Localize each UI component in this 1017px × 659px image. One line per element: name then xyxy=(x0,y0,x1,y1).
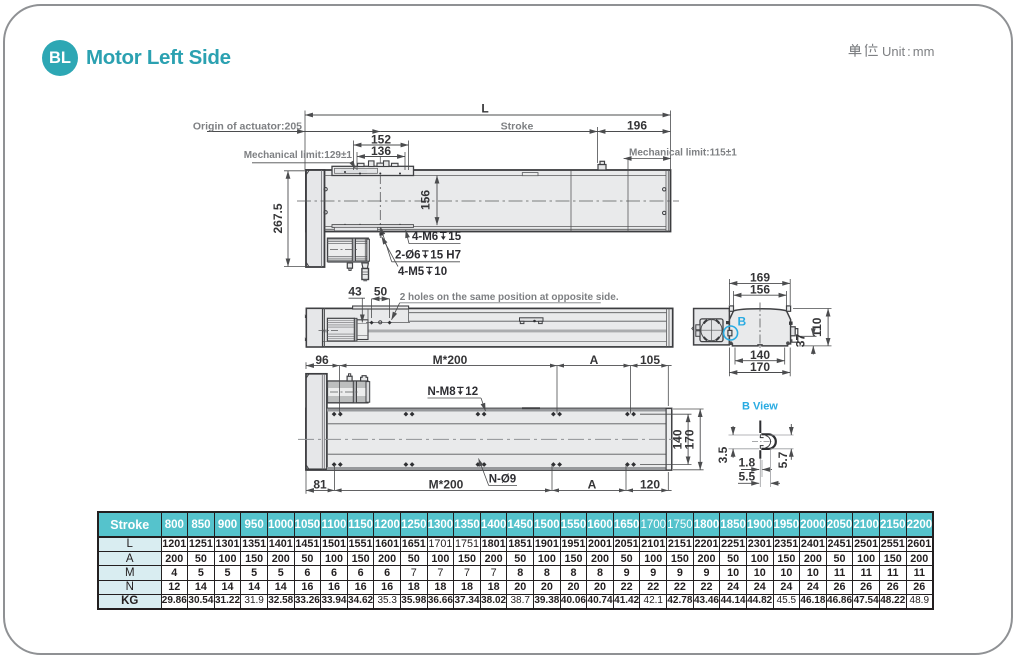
svg-text:1.8: 1.8 xyxy=(739,456,756,470)
svg-text:43: 43 xyxy=(348,285,362,299)
svg-text:37: 37 xyxy=(794,334,808,348)
svg-text:156: 156 xyxy=(750,283,770,297)
svg-text:Mechanical limit:115±1: Mechanical limit:115±1 xyxy=(629,148,737,159)
svg-text:105: 105 xyxy=(640,353,660,367)
svg-text:81: 81 xyxy=(313,478,327,492)
svg-text:96: 96 xyxy=(315,353,329,367)
svg-text:170: 170 xyxy=(750,360,770,374)
svg-text:B: B xyxy=(738,315,747,329)
svg-text:Mechanical limit:129±1: Mechanical limit:129±1 xyxy=(244,150,353,161)
svg-text:N-M8: N-M8 xyxy=(428,386,457,398)
svg-text:B View: B View xyxy=(742,401,778,413)
svg-text:3.5: 3.5 xyxy=(716,446,730,463)
svg-text:A: A xyxy=(590,353,599,367)
svg-text:12: 12 xyxy=(465,386,478,398)
svg-text:M*200: M*200 xyxy=(429,478,464,492)
svg-text:M*200: M*200 xyxy=(433,353,468,367)
svg-text:5.5: 5.5 xyxy=(739,469,756,483)
svg-text:15 H7: 15 H7 xyxy=(430,250,461,262)
svg-text:156: 156 xyxy=(419,190,433,210)
svg-text:A: A xyxy=(588,478,597,492)
svg-text:110: 110 xyxy=(810,317,824,337)
svg-text:136: 136 xyxy=(371,144,391,158)
svg-text:50: 50 xyxy=(374,285,388,299)
svg-text:2 holes on the same position a: 2 holes on the same position at opposite… xyxy=(400,292,619,303)
svg-text:170: 170 xyxy=(683,429,697,449)
svg-text:4-M6: 4-M6 xyxy=(412,231,438,243)
svg-text:4-M5: 4-M5 xyxy=(398,266,425,278)
svg-text:15: 15 xyxy=(448,231,461,243)
svg-text:10: 10 xyxy=(434,266,447,278)
svg-text:Origin of actuator:205: Origin of actuator:205 xyxy=(193,121,302,133)
svg-text:267.5: 267.5 xyxy=(271,203,285,233)
svg-text:2-Ø6: 2-Ø6 xyxy=(395,250,421,262)
svg-text:N-Ø9: N-Ø9 xyxy=(489,474,516,486)
svg-text:Stroke: Stroke xyxy=(501,121,534,133)
svg-text:L: L xyxy=(481,102,488,116)
svg-text:120: 120 xyxy=(640,478,660,492)
svg-text:196: 196 xyxy=(627,119,647,133)
svg-text:5.7: 5.7 xyxy=(776,451,790,468)
